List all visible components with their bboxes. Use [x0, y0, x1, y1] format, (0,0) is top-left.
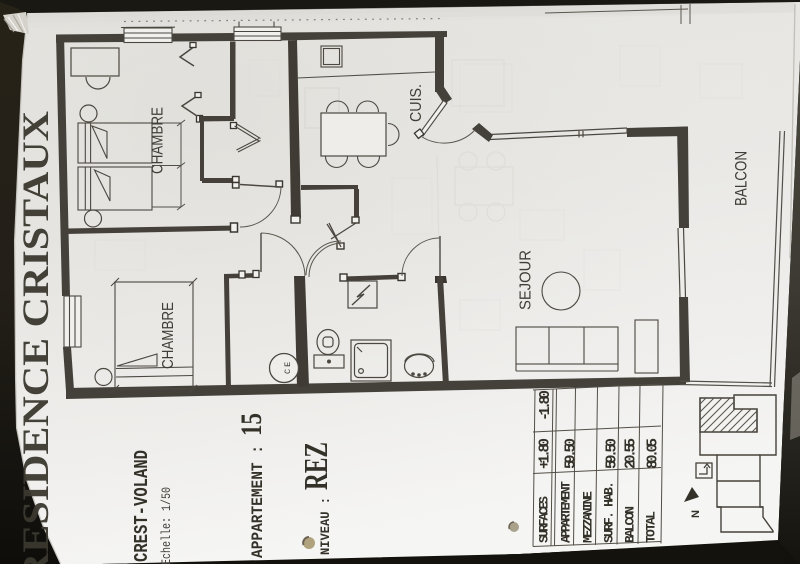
svg-text:SURF. HAB.: SURF. HAB. — [602, 481, 617, 543]
svg-text:80.05: 80.05 — [645, 438, 662, 469]
svg-text:APPARTEMENT :: APPARTEMENT : — [249, 445, 267, 558]
svg-text:CUIS.: CUIS. — [408, 84, 425, 122]
svg-text:BALCON: BALCON — [623, 506, 638, 543]
svg-text:RESIDENCE CRISTAUX: RESIDENCE CRISTAUX — [16, 111, 57, 564]
svg-text:15: 15 — [235, 413, 268, 436]
svg-text:CHAMBRE: CHAMBRE — [150, 107, 167, 174]
svg-text:NIVEAU :: NIVEAU : — [318, 497, 333, 555]
svg-text:TOTAL: TOTAL — [644, 511, 659, 543]
svg-text:SEJOUR: SEJOUR — [518, 250, 535, 310]
svg-text:20.55: 20.55 — [623, 438, 640, 469]
svg-text:Echelle: 1/50: Echelle: 1/50 — [160, 487, 174, 564]
svg-text:N: N — [690, 510, 702, 518]
svg-text:-1.80: -1.80 — [537, 390, 554, 421]
svg-text:CHAMBRE: CHAMBRE — [160, 302, 177, 369]
svg-text:SURFACES: SURFACES — [537, 496, 552, 543]
svg-text:CE: CE — [283, 360, 293, 374]
svg-text:MEZZANINE: MEZZANINE — [581, 491, 596, 543]
svg-text:+1.80: +1.80 — [537, 438, 554, 469]
svg-text:59.50: 59.50 — [604, 438, 621, 469]
svg-text:59.50: 59.50 — [563, 438, 580, 469]
svg-text:REZ: REZ — [298, 442, 335, 490]
svg-text:CREST-VOLAND: CREST-VOLAND — [131, 450, 153, 562]
svg-text:APPARTEMENT: APPARTEMENT — [559, 481, 574, 543]
svg-text:BALCON: BALCON — [733, 151, 751, 206]
